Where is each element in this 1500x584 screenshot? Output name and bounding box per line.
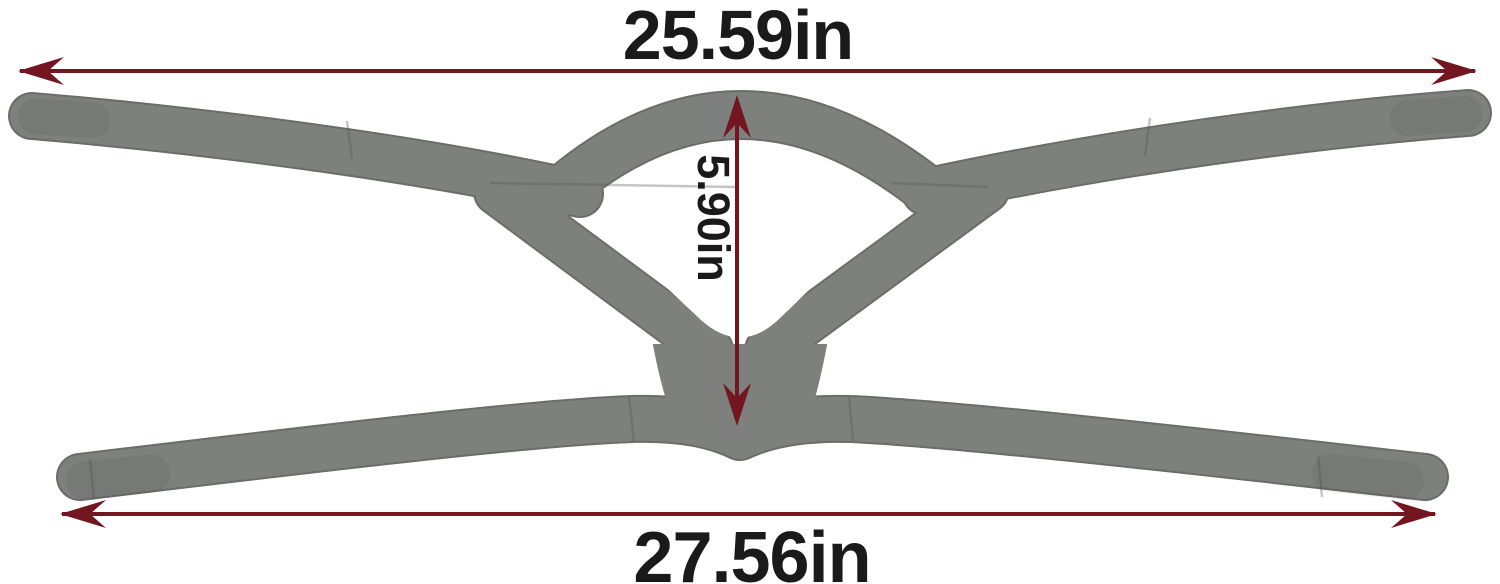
bottom-width-label: 27.56in xyxy=(633,522,870,584)
velcro-tab-top-right xyxy=(1389,95,1483,137)
velcro-tab-top-left xyxy=(17,97,111,139)
top-width-label: 25.59in xyxy=(623,0,853,70)
bottom-strap xyxy=(80,419,1425,477)
headgear-strap-graphic xyxy=(0,0,1500,584)
loop-height-label: 5.90in xyxy=(690,138,736,298)
product-dimension-image: 25.59in 5.90in 27.56in xyxy=(0,0,1500,584)
